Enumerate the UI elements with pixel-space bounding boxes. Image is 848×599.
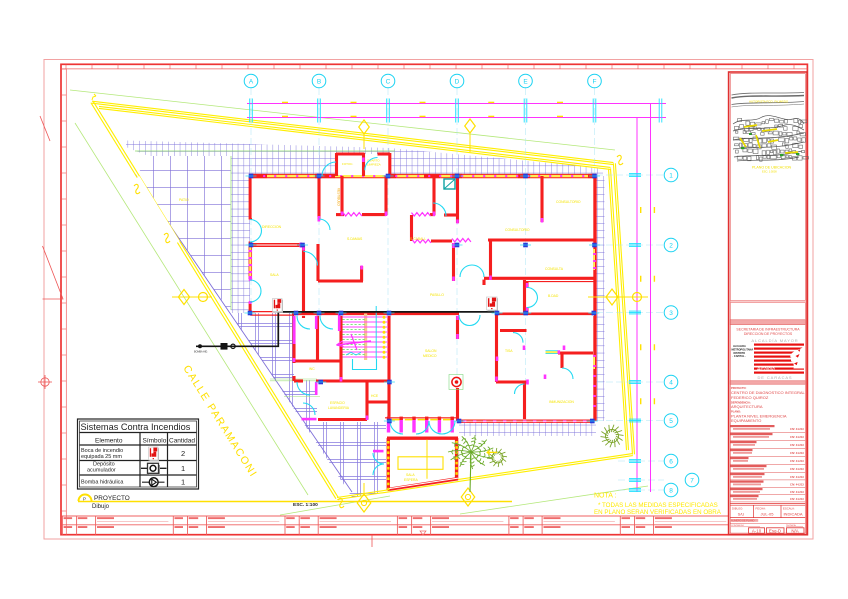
- svg-text:HCE: HCE: [371, 394, 379, 398]
- svg-text:6: 6: [669, 459, 673, 466]
- svg-text:Símbolo: Símbolo: [143, 438, 167, 445]
- svg-text:7: 7: [690, 478, 694, 485]
- svg-text:Cantidad: Cantidad: [169, 438, 195, 445]
- svg-text:8: 8: [669, 488, 673, 495]
- svg-text:JUL-05: JUL-05: [761, 511, 775, 516]
- svg-text:S.DAMAS: S.DAMAS: [347, 237, 363, 241]
- svg-text:BOMBA HID.: BOMBA HID.: [194, 351, 208, 354]
- svg-text:C: C: [386, 78, 391, 85]
- svg-text:Sistemas Contra Incendios: Sistemas Contra Incendios: [81, 422, 191, 432]
- svg-text:CONSULTORIO: CONSULTORIO: [556, 200, 581, 204]
- svg-text:CONSULTA: CONSULTA: [545, 267, 564, 271]
- svg-text:LAVANDERIA: LAVANDERIA: [328, 406, 350, 410]
- svg-text:B: B: [317, 78, 321, 85]
- svg-text:CIV: 44.213: CIV: 44.213: [790, 451, 804, 455]
- svg-text:DIBUJO:: DIBUJO:: [732, 506, 743, 510]
- svg-text:3: 3: [669, 310, 673, 317]
- svg-text:MEDICO: MEDICO: [423, 354, 437, 358]
- svg-text:Alcaldía: Alcaldía: [756, 366, 775, 372]
- svg-text:. CAPITAL .: . CAPITAL .: [733, 355, 747, 358]
- svg-text:Bomba hidráulica: Bomba hidráulica: [81, 480, 124, 486]
- svg-text:S.CABALL: S.CABALL: [410, 237, 426, 241]
- svg-text:CIV: 44.213: CIV: 44.213: [790, 435, 804, 439]
- svg-text:CIV: 44.213: CIV: 44.213: [790, 459, 804, 463]
- svg-text:ESPERA: ESPERA: [404, 478, 418, 482]
- svg-text:* TODAS LAS MEDIDAS ESPECIFICA: * TODAS LAS MEDIDAS ESPECIFICADAS: [598, 502, 718, 509]
- svg-text:P: P: [83, 497, 86, 502]
- svg-text:INMUNIZACION: INMUNIZACION: [549, 400, 574, 404]
- svg-text:FOTOC.: FOTOC.: [342, 162, 353, 166]
- svg-text:4: 4: [669, 380, 673, 387]
- svg-text:CIV: 44.213: CIV: 44.213: [790, 427, 804, 431]
- svg-text:2: 2: [669, 243, 673, 250]
- svg-text:Elemento: Elemento: [95, 438, 123, 445]
- svg-text:ALCALDÍA MAYOR: ALCALDÍA MAYOR: [751, 338, 798, 343]
- svg-text:5: 5: [669, 418, 673, 425]
- svg-text:TISA: TISA: [505, 349, 513, 353]
- svg-text:PLANO DE UBICACION: PLANO DE UBICACION: [752, 166, 792, 170]
- svg-text:WC: WC: [309, 367, 315, 371]
- svg-text:INDICADA: INDICADA: [783, 511, 802, 516]
- svg-text:N/A: N/A: [791, 528, 798, 533]
- svg-text:CIV: 44.213: CIV: 44.213: [790, 483, 804, 487]
- svg-text:AUTOPISTA FCO. FAJARDO: AUTOPISTA FCO. FAJARDO: [749, 100, 789, 104]
- svg-text:SALA: SALA: [270, 273, 279, 277]
- svg-text:NUMERO DE PLANO: NUMERO DE PLANO: [731, 519, 755, 522]
- svg-text:S/U: S/U: [738, 511, 745, 516]
- svg-text:EQUIPAMIENTO: EQUIPAMIENTO: [731, 418, 761, 423]
- svg-text:1: 1: [669, 173, 673, 180]
- svg-text:NOTA :: NOTA :: [594, 493, 616, 500]
- svg-text:A: A: [249, 78, 254, 85]
- svg-text:DIRECCION DE PROYECTOS: DIRECCION DE PROYECTOS: [744, 332, 793, 336]
- svg-text:PATIO: PATIO: [179, 198, 189, 202]
- svg-text:CONSULTORIO: CONSULTORIO: [505, 228, 530, 232]
- svg-text:CIV: 44.213: CIV: 44.213: [790, 467, 804, 471]
- svg-text:Esq-D: Esq-D: [769, 528, 781, 533]
- svg-text:VESTIBULO: VESTIBULO: [337, 188, 341, 206]
- svg-text:CIV: 44.213: CIV: 44.213: [790, 475, 804, 479]
- svg-text:SALA: SALA: [406, 473, 415, 477]
- svg-text:FECHA:: FECHA:: [756, 506, 766, 510]
- svg-text:TECNICA: TECNICA: [786, 524, 796, 527]
- svg-text:B.DAD: B.DAD: [548, 294, 559, 298]
- svg-text:1: 1: [181, 464, 185, 473]
- svg-text:SALON: SALON: [425, 349, 437, 353]
- svg-text:ESC. 1:100: ESC. 1:100: [293, 502, 318, 508]
- svg-text:A-10: A-10: [752, 528, 762, 533]
- svg-text:F: F: [593, 78, 597, 85]
- svg-text:SECRETARIA DE INFRAESTRUCTURA: SECRETARIA DE INFRAESTRUCTURA: [736, 328, 800, 332]
- svg-text:LIMPIEZA: LIMPIEZA: [367, 163, 381, 167]
- svg-text:DIRECCION: DIRECCION: [262, 225, 282, 229]
- svg-text:FEDERICO QUIROZ: FEDERICO QUIROZ: [731, 395, 769, 400]
- svg-text:Dibujo: Dibujo: [92, 504, 110, 510]
- svg-text:ESCALA:: ESCALA:: [783, 506, 795, 510]
- svg-text:2: 2: [181, 449, 185, 458]
- svg-text:CIV: 44.213: CIV: 44.213: [790, 443, 804, 447]
- svg-text:ESPACIO: ESPACIO: [330, 401, 345, 405]
- svg-text:ARQUITECTURA: ARQUITECTURA: [731, 404, 763, 409]
- svg-text:D: D: [455, 78, 460, 85]
- svg-text:E: E: [523, 78, 528, 85]
- svg-text:DE CARACAS: DE CARACAS: [757, 375, 792, 380]
- svg-text:EN PLANO SERAN VERIFICADAS EN: EN PLANO SERAN VERIFICADAS EN OBRA: [594, 509, 722, 516]
- svg-text:1: 1: [181, 478, 185, 487]
- svg-text:CIV: 44.213: CIV: 44.213: [790, 497, 804, 501]
- svg-text:PROYECTO:: PROYECTO:: [731, 386, 747, 390]
- svg-text:acumulador: acumulador: [87, 468, 116, 474]
- svg-text:PASILLO: PASILLO: [430, 293, 444, 297]
- svg-text:ESC: 1:5000: ESC: 1:5000: [762, 170, 777, 174]
- svg-text:CIV: 44.213: CIV: 44.213: [790, 490, 804, 494]
- svg-text:equipada 25 mm: equipada 25 mm: [81, 454, 122, 460]
